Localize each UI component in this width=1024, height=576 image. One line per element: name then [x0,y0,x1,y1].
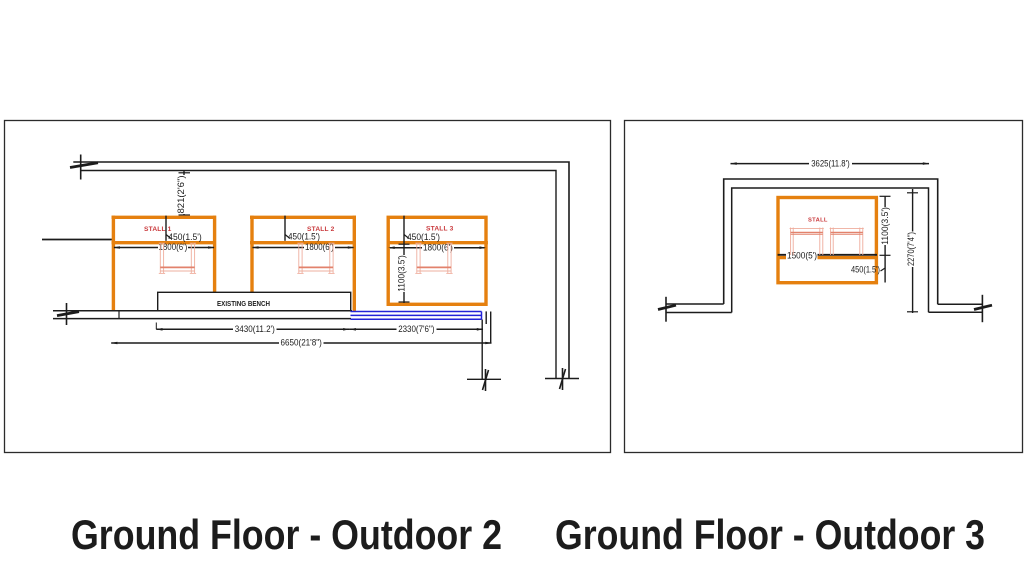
svg-text:1800(6'): 1800(6') [159,242,188,252]
svg-text:1100(3.5'): 1100(3.5') [397,255,407,292]
svg-text:2330(7'6"): 2330(7'6") [398,324,434,334]
svg-text:1800(6'): 1800(6') [423,242,453,252]
svg-text:1100(3.5'): 1100(3.5') [880,207,890,245]
svg-text:EXISTING BENCH: EXISTING BENCH [217,301,270,308]
svg-text:Ground Floor - Outdoor 2: Ground Floor - Outdoor 2 [71,511,502,558]
svg-text:3430(11.2'): 3430(11.2') [235,324,275,334]
svg-text:6650(21'8"): 6650(21'8") [281,338,322,348]
svg-text:2270(7'4"): 2270(7'4") [906,232,916,266]
svg-text:450(1.5'): 450(1.5') [168,232,201,242]
svg-text:450(1.5'): 450(1.5') [288,231,320,241]
svg-text:821(2'6"): 821(2'6") [176,176,186,214]
svg-text:450(1.5'): 450(1.5') [851,265,880,275]
svg-text:STALL: STALL [808,217,828,223]
svg-text:450(1.5'): 450(1.5') [407,232,440,242]
svg-text:Ground Floor - Outdoor 3: Ground Floor - Outdoor 3 [555,511,985,558]
svg-text:3625(11.8'): 3625(11.8') [811,158,850,168]
svg-text:1500(5'): 1500(5') [787,250,817,260]
